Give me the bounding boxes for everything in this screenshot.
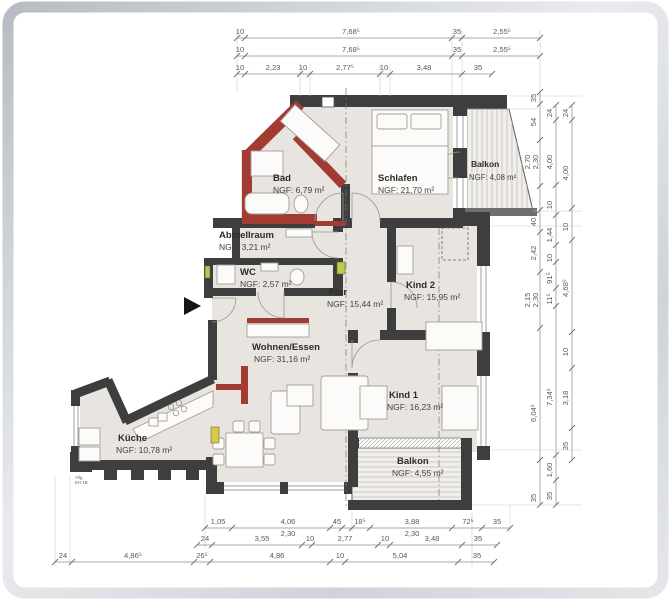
dimension-label: 24: [59, 551, 67, 560]
dimension-label: 4,00: [545, 155, 554, 170]
kitchen-unit: [79, 447, 100, 461]
exit-note-line2: EH 1B: [75, 480, 88, 485]
desk-kind1: [360, 386, 387, 419]
dimension-label: 4,00: [561, 166, 570, 181]
floor-plan-drawing: Allg. EH 1B Bad NGF: 6,79 m² Schlafen NG…: [0, 0, 671, 600]
bed-kind2: [426, 322, 482, 350]
installation-marker: [205, 266, 210, 278]
coffee-table: [287, 385, 313, 406]
dimension-label: 91⁵: [545, 272, 554, 284]
dimension-label: 45: [333, 517, 341, 526]
room-area-bad: NGF: 6,79 m²: [273, 185, 325, 195]
dimension-label: 10: [381, 534, 389, 543]
dimension-label: 2,42: [529, 246, 538, 261]
shelf-abstellraum: [286, 229, 312, 237]
dimension-label: 72⁵: [462, 517, 474, 526]
dimension-label: 1,44: [545, 228, 554, 243]
dimension-label: 10: [236, 27, 244, 36]
dimension-label: 5,04: [393, 551, 408, 560]
dimension-label: 10: [306, 534, 314, 543]
dimension-label: 35: [453, 27, 461, 36]
bathtub: [245, 193, 289, 214]
dimension-label: 18⁵: [354, 517, 366, 526]
room-name-kueche: Küche: [118, 433, 147, 444]
dimension-label: 24: [545, 109, 554, 117]
dimension-label: 10: [236, 45, 244, 54]
dimension-label: 35: [453, 45, 461, 54]
room-name-kind1: Kind 1: [389, 390, 419, 401]
dimension-label: 2,55⁵: [493, 27, 511, 36]
dimension-label: 2,30: [531, 293, 540, 308]
dimension-label: 54: [529, 118, 538, 126]
sideboard-wohnen: [247, 324, 309, 337]
room-name-balkon-bottom: Balkon: [397, 456, 429, 467]
wardrobe-kind2: [397, 246, 413, 274]
dimension-label: 10: [545, 201, 554, 209]
floor-plan-page: Allg. EH 1B Bad NGF: 6,79 m² Schlafen NG…: [0, 0, 671, 600]
dimension-label: 10: [299, 63, 307, 72]
room-name-flur: Flur: [329, 287, 347, 298]
dining-table: [226, 433, 263, 467]
room-area-kind2: NGF: 15,95 m²: [404, 292, 460, 302]
dimension-label: 10: [236, 63, 244, 72]
dimension-label: 26⁵: [196, 551, 208, 560]
bed-kind1: [442, 386, 478, 430]
dimension-label: 4,06: [281, 517, 296, 526]
dimension-label: 2,30: [281, 529, 296, 538]
dimension-label: 2,23: [266, 63, 281, 72]
kitchen-unit: [79, 428, 100, 445]
dimension-label: 35: [493, 517, 501, 526]
dimension-label: 2,77: [338, 534, 353, 543]
dimension-label: 2,30: [531, 155, 540, 170]
room-name-kind2: Kind 2: [406, 280, 435, 291]
dimension-label: 10: [336, 551, 344, 560]
room-area-kueche: NGF: 10,78 m²: [116, 445, 172, 455]
sink-wc: [261, 263, 278, 271]
dimension-label: 35: [545, 492, 554, 500]
dimension-label: 7,68⁵: [342, 27, 360, 36]
dimension-label: 35: [474, 63, 482, 72]
room-name-wc: WC: [240, 267, 256, 278]
dimension-label: 40: [529, 218, 538, 226]
dimension-label: 3,88: [405, 517, 420, 526]
dimension-label: 2,30: [405, 529, 420, 538]
dimension-label: 3,48: [425, 534, 440, 543]
dimension-label: 4,86⁵: [124, 551, 142, 560]
dimension-label: 3,55: [255, 534, 270, 543]
dimension-label: 7,34⁵: [545, 388, 554, 406]
dimension-label: 10: [380, 63, 388, 72]
dimension-label: 35: [474, 534, 482, 543]
room-area-kind1: NGF: 16,23 m²: [387, 402, 443, 412]
dimension-label: 35: [529, 494, 538, 502]
dimension-label: 10: [545, 254, 554, 262]
room-area-abstellraum: NGF: 3,21 m²: [219, 242, 271, 252]
room-name-abstellraum: Abstellraum: [219, 230, 274, 241]
room-name-wohnen: Wohnen/Essen: [252, 342, 320, 353]
room-area-schlafen: NGF: 21,70 m²: [378, 185, 434, 195]
dimension-label: 35: [529, 94, 538, 102]
dimension-label: 24: [561, 109, 570, 117]
dimension-label: 10: [561, 348, 570, 356]
dimension-label: 2,77⁵: [336, 63, 354, 72]
dimension-label: 35: [561, 442, 570, 450]
room-area-flur: NGF: 15,44 m²: [327, 299, 383, 309]
room-area-wc: NGF: 2,57 m²: [240, 279, 292, 289]
room-area-balkon-bottom: NGF: 4,55 m²: [392, 468, 444, 478]
room-name-balkon-top: Balkon: [471, 159, 499, 169]
dimension-label: 1,05: [211, 517, 226, 526]
dimension-label: 11⁵: [545, 293, 554, 304]
dimension-label: 35: [473, 551, 481, 560]
dimension-label: 6,04⁵: [529, 404, 538, 422]
room-area-balkon-top: NGF: 4,08 m²: [469, 173, 517, 182]
dimension-label: 10: [561, 223, 570, 231]
washer-wc: [217, 265, 235, 284]
dimension-label: 3,48: [417, 63, 432, 72]
dimension-label: 24: [201, 534, 209, 543]
electrical-panel: [211, 427, 219, 443]
toilet-wc: [290, 269, 304, 285]
dimension-label: 3,18: [561, 391, 570, 406]
toilet-bad: [294, 195, 308, 213]
room-name-bad: Bad: [273, 173, 291, 184]
installation-marker: [337, 262, 345, 274]
dimension-label: 4,86: [270, 551, 285, 560]
room-area-wohnen: NGF: 31,16 m²: [254, 354, 310, 364]
dimension-label: 2,55⁵: [493, 45, 511, 54]
dimension-label: 1,60: [545, 463, 554, 478]
dimension-label: 7,68⁵: [342, 45, 360, 54]
dimension-label: 4,68⁵: [561, 279, 570, 297]
room-name-schlafen: Schlafen: [378, 173, 418, 184]
